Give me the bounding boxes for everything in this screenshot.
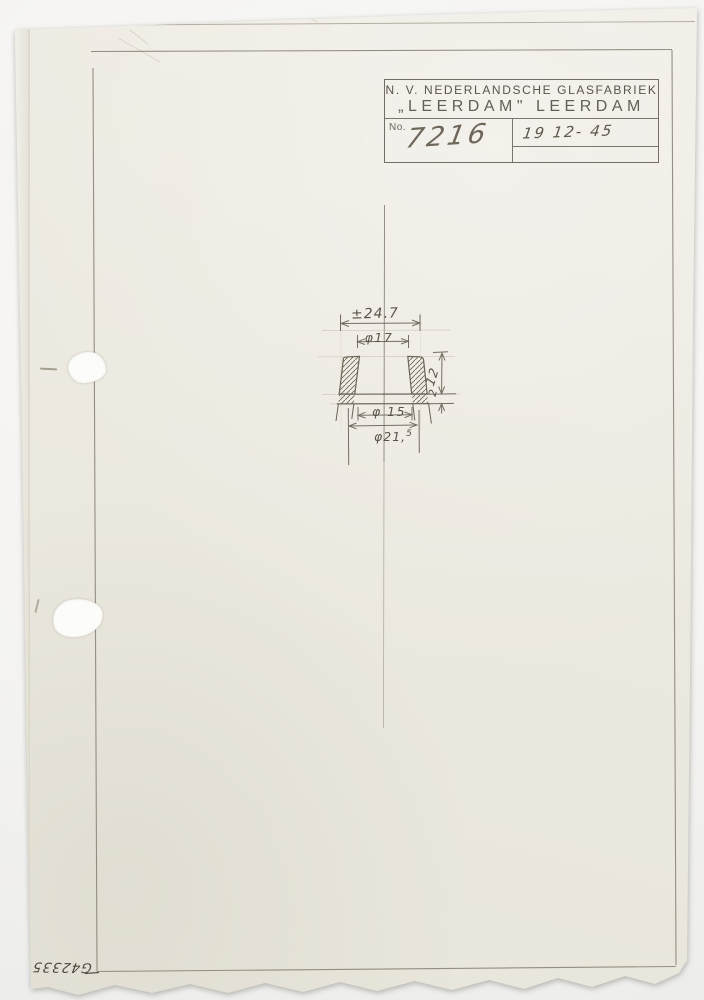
dim-outer-bottom-label: φ21,5 (374, 429, 413, 444)
date-value: 19 12- 45 (521, 121, 614, 142)
paper-sheet: N. V. NEDERLANDSCHE GLASFABRIEK „LEERDAM… (0, 0, 704, 1000)
dim-top-width-label: ±24.7 (346, 305, 404, 323)
top-edge-line (30, 22, 695, 26)
centerline (384, 205, 385, 728)
title-block: N. V. NEDERLANDSCHE GLASFABRIEK „LEERDAM… (384, 79, 659, 163)
drawing-number-cell: No. 7216 (385, 119, 513, 162)
company-name-line1: N. V. NEDERLANDSCHE GLASFABRIEK (386, 83, 658, 97)
dim-inner-top-label: φ17 (358, 330, 400, 345)
crease-marks (118, 14, 318, 62)
number-label: No. (389, 122, 406, 133)
border-frame (91, 50, 676, 972)
drawing-number-value: 7216 (404, 118, 491, 155)
title-block-lower-row: No. 7216 19 12- 45 (385, 119, 658, 162)
date-subcell: 19 12- 45 (513, 119, 658, 147)
dim-inner-bottom-label: φ 15 (369, 404, 409, 419)
left-wall (339, 356, 359, 394)
dim-outer-bottom-sup: 5 (406, 429, 413, 439)
inventory-number: G42335 (26, 958, 99, 975)
scanned-drawing-page: N. V. NEDERLANDSCHE GLASFABRIEK „LEERDAM… (0, 0, 704, 1000)
dim-outer-bottom-main: φ21, (374, 429, 406, 444)
date-cell: 19 12- 45 (513, 119, 658, 162)
company-name-cell: N. V. NEDERLANDSCHE GLASFABRIEK „LEERDAM… (385, 80, 658, 119)
paper-shadow-wrap: N. V. NEDERLANDSCHE GLASFABRIEK „LEERDAM… (0, 0, 704, 1000)
company-name-line2: „LEERDAM" LEERDAM (398, 98, 645, 116)
